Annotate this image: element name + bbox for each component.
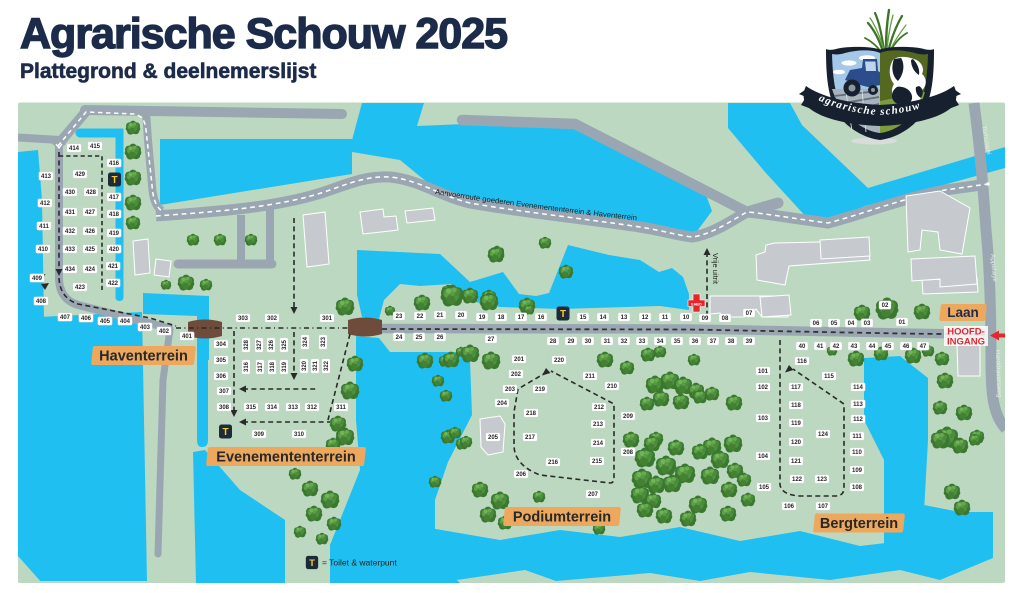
svg-text:47: 47 [920,344,927,350]
svg-text:431: 431 [65,210,76,216]
svg-text:25: 25 [416,335,423,341]
svg-text:219: 219 [535,387,546,393]
svg-text:417: 417 [109,195,120,201]
svg-text:218: 218 [526,411,537,417]
svg-text:418: 418 [109,212,120,218]
svg-text:Bergterrein: Bergterrein [820,516,898,532]
svg-text:105: 105 [759,485,770,491]
svg-text:31: 31 [604,339,611,345]
svg-text:32: 32 [621,339,628,345]
svg-text:= Toilet & waterpunt: = Toilet & waterpunt [322,558,397,568]
svg-text:05: 05 [831,321,838,327]
svg-text:427: 427 [85,210,96,216]
svg-text:315: 315 [246,405,257,411]
svg-text:321: 321 [313,360,319,371]
svg-text:309: 309 [254,432,265,438]
svg-text:303: 303 [238,316,249,322]
svg-text:44: 44 [869,344,876,350]
svg-text:216: 216 [548,460,559,466]
svg-text:402: 402 [159,329,170,335]
svg-text:425: 425 [85,247,96,253]
svg-text:313: 313 [288,405,299,411]
svg-text:104: 104 [758,454,769,460]
svg-text:Laan: Laan [947,305,979,320]
svg-text:108: 108 [852,485,863,491]
svg-text:322: 322 [324,360,330,371]
svg-text:113: 113 [853,402,863,408]
svg-text:406: 406 [81,316,92,322]
svg-text:405: 405 [100,319,111,325]
svg-text:119: 119 [791,421,801,427]
svg-text:INGANG: INGANG [947,337,985,348]
svg-text:316: 316 [244,361,250,372]
svg-text:06: 06 [813,321,820,327]
svg-text:412: 412 [40,201,51,207]
svg-text:419: 419 [109,231,120,237]
svg-text:16: 16 [538,315,545,321]
svg-text:429: 429 [75,172,86,178]
svg-text:208: 208 [623,450,634,456]
svg-text:07: 07 [746,311,753,317]
svg-text:122: 122 [792,477,803,483]
svg-text:206: 206 [516,472,527,478]
svg-text:213: 213 [593,422,604,428]
svg-text:24: 24 [396,335,403,341]
svg-text:114: 114 [853,385,863,391]
svg-text:03: 03 [864,321,871,327]
svg-text:209: 209 [623,414,634,420]
svg-text:328: 328 [244,339,250,350]
svg-text:43: 43 [851,344,858,350]
svg-text:301: 301 [322,316,333,322]
svg-text:421: 421 [108,264,119,270]
svg-text:18: 18 [498,315,505,321]
svg-text:323: 323 [321,336,327,347]
svg-text:14: 14 [600,315,607,321]
svg-text:325: 325 [282,339,288,350]
svg-text:01: 01 [899,320,906,326]
svg-text:210: 210 [607,384,618,390]
svg-text:205: 205 [488,435,499,441]
svg-text:416: 416 [109,161,120,167]
svg-text:214: 214 [593,441,604,447]
svg-text:19: 19 [479,315,486,321]
svg-text:202: 202 [511,372,522,378]
svg-text:211: 211 [585,374,595,380]
svg-text:22: 22 [417,314,424,320]
svg-text:Haventerrein: Haventerrein [99,349,188,365]
svg-text:21: 21 [437,313,444,319]
svg-text:401: 401 [182,334,193,340]
svg-text:326: 326 [269,339,275,350]
svg-text:35: 35 [674,339,681,345]
svg-text:34: 34 [657,339,664,345]
svg-text:123: 123 [817,477,828,483]
svg-text:302: 302 [267,316,278,322]
svg-text:319: 319 [282,361,288,372]
svg-text:317: 317 [258,361,264,372]
svg-text:201: 201 [514,357,525,363]
svg-text:215: 215 [592,459,603,465]
svg-text:320: 320 [302,360,308,371]
svg-text:02: 02 [882,303,889,309]
svg-text:212: 212 [594,405,605,411]
svg-text:403: 403 [140,325,151,331]
svg-text:111: 111 [852,434,862,440]
svg-text:116: 116 [797,359,807,365]
svg-text:09: 09 [702,316,709,322]
svg-text:29: 29 [568,339,575,345]
svg-text:46: 46 [903,344,910,350]
svg-text:Evenemententerrein: Evenemententerrein [216,450,355,466]
svg-text:109: 109 [852,468,863,474]
svg-text:42: 42 [833,344,840,350]
svg-text:112: 112 [853,417,863,423]
svg-text:30: 30 [585,339,592,345]
svg-text:13: 13 [621,315,628,321]
svg-text:428: 428 [86,190,97,196]
svg-text:217: 217 [525,435,536,441]
svg-text:37: 37 [710,339,717,345]
svg-text:220: 220 [554,358,565,364]
svg-text:310: 310 [294,432,305,438]
svg-text:26: 26 [437,335,444,341]
svg-text:311: 311 [336,405,346,411]
svg-text:28: 28 [550,339,557,345]
svg-text:327: 327 [257,339,263,350]
svg-text:15: 15 [580,315,587,321]
svg-text:415: 415 [90,144,101,150]
svg-text:23: 23 [396,314,403,320]
svg-text:121: 121 [791,459,802,465]
svg-text:110: 110 [852,450,862,456]
svg-text:426: 426 [85,229,96,235]
svg-text:36: 36 [692,339,699,345]
svg-text:120: 120 [791,440,802,446]
svg-text:204: 204 [497,401,508,407]
svg-text:423: 423 [75,285,86,291]
svg-text:33: 33 [639,339,646,345]
svg-text:306: 306 [216,374,227,380]
svg-text:432: 432 [65,229,76,235]
svg-text:312: 312 [307,405,318,411]
svg-text:203: 203 [505,387,516,393]
svg-text:407: 407 [60,315,71,321]
svg-text:103: 103 [758,416,769,422]
svg-text:04: 04 [848,321,855,327]
svg-text:115: 115 [824,374,834,380]
svg-text:413: 413 [41,174,52,180]
svg-text:38: 38 [728,339,735,345]
svg-text:Vrije uitrit: Vrije uitrit [711,253,720,285]
svg-text:10: 10 [683,315,690,321]
svg-text:39: 39 [746,339,753,345]
svg-text:430: 430 [65,190,76,196]
svg-text:411: 411 [39,224,49,230]
svg-text:Podiumterrein: Podiumterrein [513,510,611,526]
svg-text:12: 12 [642,315,649,321]
svg-text:17: 17 [518,315,525,321]
svg-text:107: 107 [818,504,829,510]
svg-text:308: 308 [219,405,230,411]
svg-text:124: 124 [818,432,829,438]
svg-text:422: 422 [108,281,119,287]
svg-text:409: 409 [32,276,43,282]
svg-text:EHBO: EHBO [691,302,702,306]
svg-text:410: 410 [38,247,49,253]
svg-text:420: 420 [109,247,120,253]
svg-text:408: 408 [36,299,47,305]
svg-text:106: 106 [784,504,795,510]
svg-text:304: 304 [216,342,227,348]
svg-text:207: 207 [588,492,599,498]
svg-text:40: 40 [799,344,806,350]
svg-text:20: 20 [458,313,465,319]
svg-text:318: 318 [270,361,276,372]
svg-text:118: 118 [791,403,801,409]
svg-text:27: 27 [488,337,495,343]
svg-text:424: 424 [85,267,96,273]
svg-text:414: 414 [69,146,80,152]
svg-text:41: 41 [817,344,824,350]
svg-text:307: 307 [219,389,230,395]
svg-text:324: 324 [303,336,309,347]
svg-text:101: 101 [758,369,769,375]
svg-text:305: 305 [216,358,227,364]
svg-text:08: 08 [722,316,729,322]
svg-text:433: 433 [65,247,76,253]
svg-text:314: 314 [267,405,278,411]
svg-text:45: 45 [885,344,892,350]
svg-text:434: 434 [65,267,76,273]
svg-text:117: 117 [791,385,801,391]
svg-text:404: 404 [120,319,131,325]
svg-text:11: 11 [662,315,669,321]
svg-text:102: 102 [758,385,769,391]
